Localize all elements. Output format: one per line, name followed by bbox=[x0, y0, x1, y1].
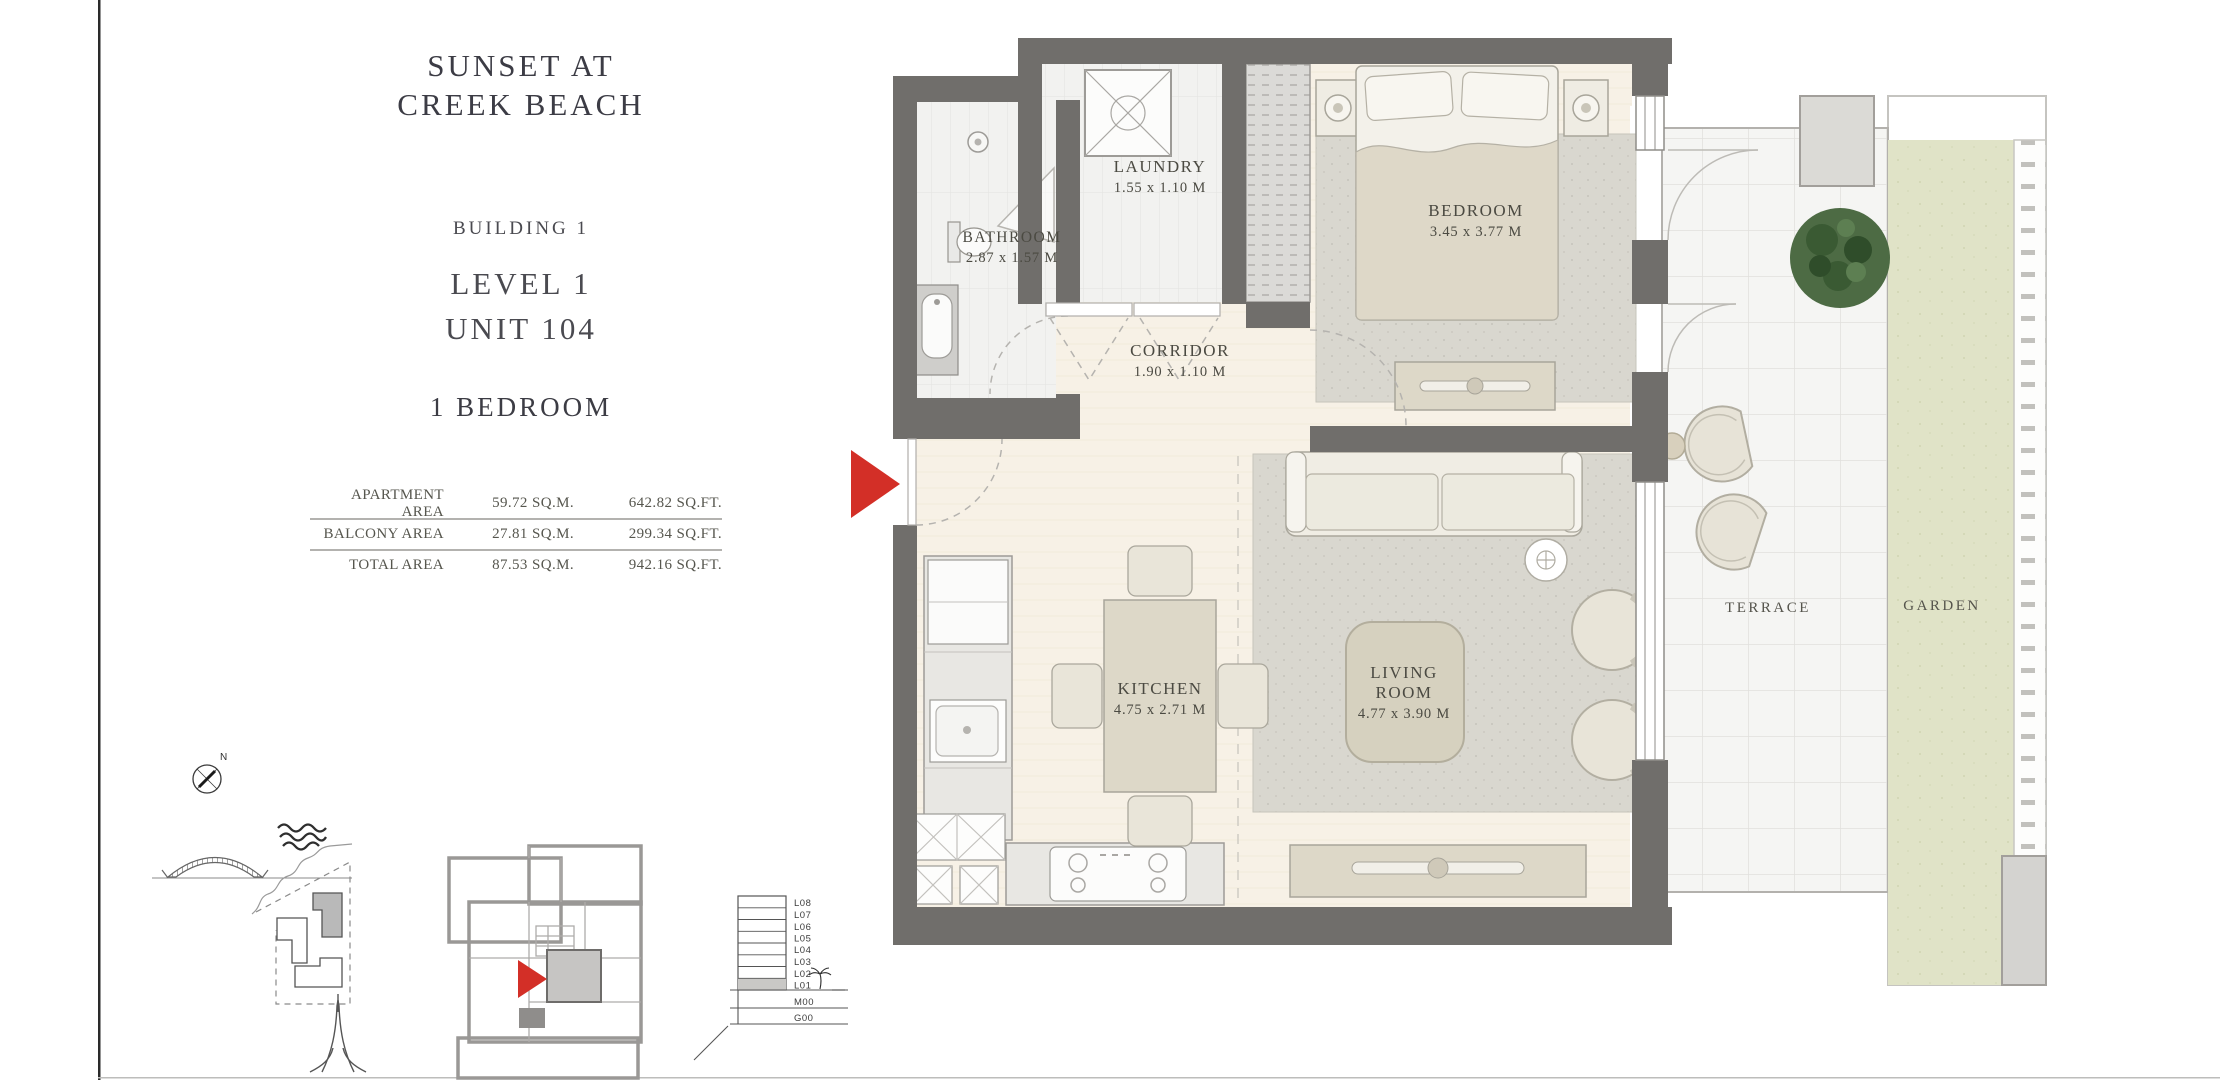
building-label: BUILDING 1 bbox=[271, 218, 771, 240]
site-location-sketch bbox=[152, 825, 366, 1073]
planter-box-bottom bbox=[2002, 856, 2046, 985]
level-label: L06 bbox=[794, 922, 811, 933]
bed bbox=[1356, 66, 1558, 320]
sofa bbox=[1286, 452, 1582, 536]
stove-counter bbox=[1006, 843, 1224, 905]
site-building-highlighted bbox=[313, 893, 342, 937]
key-plan-core bbox=[519, 1008, 545, 1028]
page-left-border bbox=[98, 0, 101, 1080]
building-key-plan bbox=[449, 846, 641, 1078]
area-row-sqm: 87.53 SQ.M. bbox=[444, 557, 574, 574]
level-label: L01 bbox=[794, 981, 811, 992]
dresser bbox=[1395, 362, 1555, 410]
level-labels: L08 L07 L06 L05 L04 L03 L02 L01 M00 G00 bbox=[794, 898, 814, 1024]
compass-icon: N bbox=[193, 752, 227, 793]
level-label: L02 bbox=[794, 969, 811, 980]
kitchen-label: KITCHEN bbox=[1117, 679, 1202, 698]
level-label: L08 bbox=[794, 898, 811, 909]
garden-label: GARDEN bbox=[1903, 598, 1981, 614]
level-label-sidebar: LEVEL 1 bbox=[271, 266, 771, 302]
area-row-sqft: 642.82 SQ.FT. bbox=[574, 495, 722, 512]
area-row-label: BALCONY AREA bbox=[310, 526, 444, 543]
area-row-sqm: 27.81 SQ.M. bbox=[444, 526, 574, 543]
level-label: L04 bbox=[794, 945, 811, 956]
corridor-dims: 1.90 x 1.10 M bbox=[1134, 364, 1226, 380]
kitchen-dims: 4.75 x 2.71 M bbox=[1114, 702, 1206, 718]
water-waves-icon bbox=[278, 825, 326, 850]
planter-box-top bbox=[1800, 96, 1874, 186]
terrace-garden-area bbox=[1659, 96, 2046, 985]
level-label: L07 bbox=[794, 910, 811, 921]
living-room-dims: 4.77 x 3.90 M bbox=[1358, 706, 1450, 722]
bathroom-dims: 2.87 x 1.57 M bbox=[966, 250, 1058, 266]
key-plan-unit-highlight bbox=[547, 950, 601, 1002]
living-room-label-line2: ROOM bbox=[1375, 683, 1432, 702]
site-building bbox=[277, 918, 307, 963]
area-table-row: TOTAL AREA 87.53 SQ.M. 942.16 SQ.FT. bbox=[310, 551, 722, 580]
compass-north-label: N bbox=[220, 752, 227, 763]
level-label: L05 bbox=[794, 934, 811, 945]
level-label: G00 bbox=[794, 1013, 813, 1024]
corridor-label: CORRIDOR bbox=[1130, 341, 1230, 360]
area-row-sqft: 299.34 SQ.FT. bbox=[574, 526, 722, 543]
area-table: APARTMENT AREA 59.72 SQ.M. 642.82 SQ.FT.… bbox=[310, 489, 722, 580]
key-plan-arrow-icon bbox=[518, 960, 547, 998]
bridge-icon bbox=[168, 858, 262, 878]
page-bottom-border bbox=[98, 1077, 2220, 1079]
level-highlight-band bbox=[738, 978, 786, 990]
area-table-row: APARTMENT AREA 59.72 SQ.M. 642.82 SQ.FT. bbox=[310, 489, 722, 520]
project-title-line1: SUNSET AT bbox=[271, 48, 771, 84]
laundry-dims: 1.55 x 1.10 M bbox=[1114, 180, 1206, 196]
area-row-sqm: 59.72 SQ.M. bbox=[444, 495, 574, 512]
garden-lawn bbox=[1888, 140, 2014, 985]
area-row-label: TOTAL AREA bbox=[310, 557, 444, 574]
kitchen-counter bbox=[924, 556, 1012, 840]
area-row-label: APARTMENT AREA bbox=[310, 487, 444, 521]
project-title-line2: CREEK BEACH bbox=[271, 87, 771, 123]
unit-label: UNIT 104 bbox=[271, 311, 771, 347]
terrace-label: TERRACE bbox=[1725, 600, 1811, 616]
bedroom-label: BEDROOM bbox=[1428, 201, 1524, 220]
bathroom-label: BATHROOM bbox=[963, 229, 1062, 246]
wardrobe bbox=[1246, 64, 1310, 302]
side-table bbox=[1525, 539, 1567, 581]
tower-spire-icon bbox=[310, 994, 366, 1072]
area-table-row: BALCONY AREA 27.81 SQ.M. 299.34 SQ.FT. bbox=[310, 520, 722, 551]
floorplan-brochure-page: { "document": { "project_line1": "SUNSET… bbox=[0, 0, 2220, 1080]
palm-icon bbox=[809, 968, 845, 990]
laundry-label: LAUNDRY bbox=[1114, 157, 1207, 176]
unit-type-heading: 1 BEDROOM bbox=[271, 392, 771, 423]
level-label: L03 bbox=[794, 957, 811, 968]
bathtub bbox=[916, 285, 958, 375]
level-label: M00 bbox=[794, 997, 814, 1008]
tree-icon bbox=[1790, 208, 1890, 308]
tv-console bbox=[1290, 845, 1586, 897]
bedroom-dims: 3.45 x 3.77 M bbox=[1430, 224, 1522, 240]
level-stack-diagram: L08 L07 L06 L05 L04 L03 L02 L01 M00 G00 bbox=[694, 896, 848, 1060]
entrance-arrow-icon bbox=[851, 450, 900, 518]
sink bbox=[930, 700, 1006, 762]
living-room-label-line1: LIVING bbox=[1370, 663, 1438, 682]
laundry-fixtures bbox=[1085, 70, 1171, 156]
area-row-sqft: 942.16 SQ.FT. bbox=[574, 557, 722, 574]
